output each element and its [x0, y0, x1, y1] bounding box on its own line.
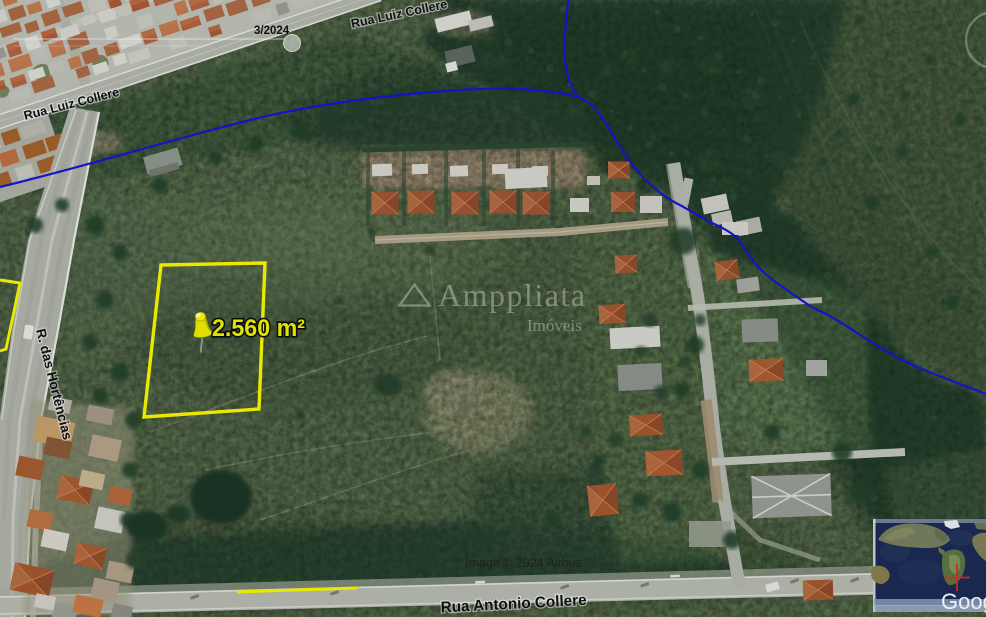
svg-text:3/2024: 3/2024: [254, 25, 290, 37]
svg-text:Goog: Goog: [941, 589, 986, 614]
svg-text:2.560 m²: 2.560 m²: [212, 315, 305, 342]
svg-text:Amppliata: Amppliata: [438, 277, 587, 313]
svg-text:Imóveis: Imóveis: [527, 316, 582, 335]
svg-text:Image © 2024 Airbus: Image © 2024 Airbus: [465, 556, 582, 570]
